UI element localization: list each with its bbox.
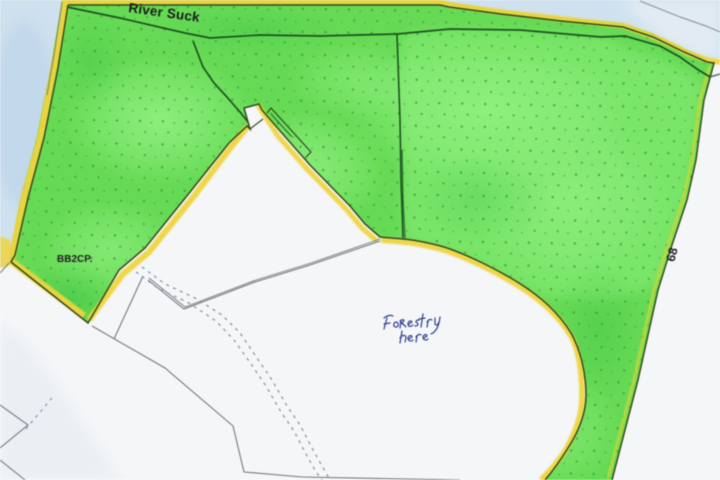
svg-text:BB2CP.: BB2CP. xyxy=(57,254,93,265)
